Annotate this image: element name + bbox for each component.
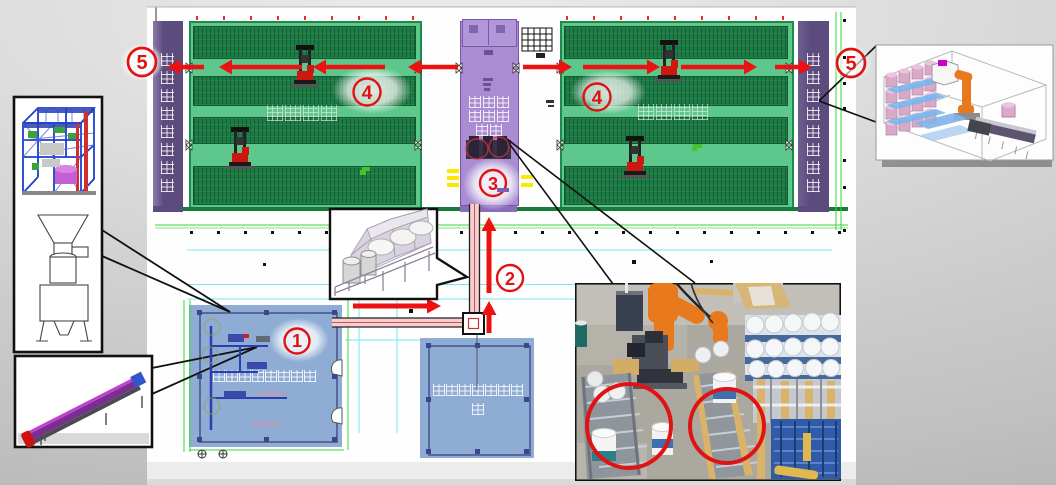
svg-text:1: 1 — [292, 331, 302, 351]
svg-text:3: 3 — [488, 174, 498, 194]
svg-text:2: 2 — [505, 269, 515, 289]
svg-text:5: 5 — [845, 53, 856, 75]
svg-text:4: 4 — [592, 88, 603, 109]
svg-text:4: 4 — [362, 83, 373, 104]
svg-text:5: 5 — [136, 52, 147, 74]
